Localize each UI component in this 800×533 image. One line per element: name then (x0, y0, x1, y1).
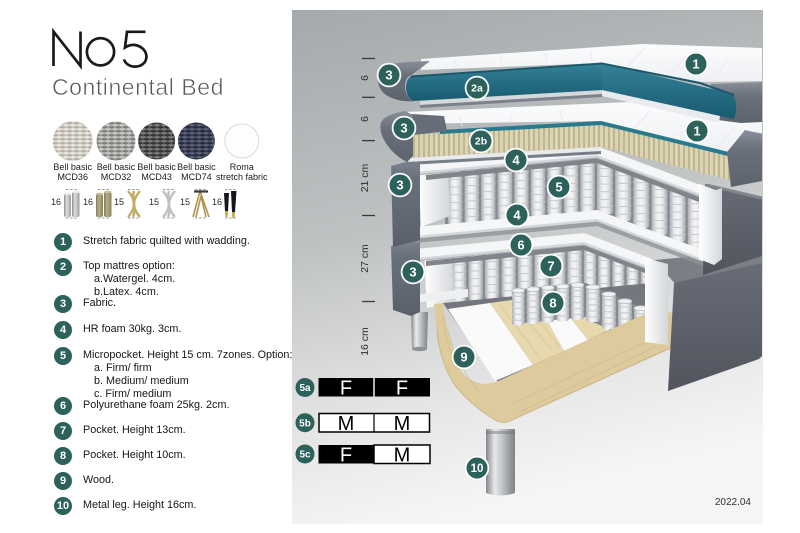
svg-text:stretch fabric: stretch fabric (216, 172, 268, 182)
svg-text:16: 16 (51, 197, 61, 207)
svg-text:5a: 5a (299, 383, 311, 394)
svg-text:3: 3 (385, 68, 392, 83)
svg-text:MCD43: MCD43 (141, 172, 172, 182)
svg-text:16: 16 (212, 197, 222, 207)
svg-text:21 cm: 21 cm (359, 163, 371, 192)
svg-text:4: 4 (513, 208, 521, 223)
svg-text:8: 8 (549, 296, 556, 311)
svg-text:MCD74: MCD74 (181, 172, 212, 182)
svg-text:1: 1 (693, 124, 700, 139)
svg-text:7: 7 (547, 259, 554, 274)
svg-text:Bell basic: Bell basic (97, 162, 136, 172)
svg-text:M: M (338, 413, 355, 435)
svg-text:1: 1 (692, 57, 699, 72)
svg-text:3: 3 (400, 121, 407, 136)
svg-text:F: F (396, 378, 408, 400)
svg-text:15: 15 (149, 197, 159, 207)
svg-text:M: M (394, 413, 411, 435)
svg-text:16: 16 (83, 197, 93, 207)
svg-text:6: 6 (359, 75, 371, 81)
svg-text:Bell basic: Bell basic (137, 162, 176, 172)
svg-text:3: 3 (409, 265, 416, 280)
svg-text:MCD32: MCD32 (101, 172, 132, 182)
svg-text:M: M (394, 445, 411, 467)
svg-text:2a: 2a (471, 83, 483, 95)
svg-text:4: 4 (512, 153, 520, 168)
svg-text:MCD36: MCD36 (57, 172, 88, 182)
svg-text:6: 6 (517, 238, 524, 253)
svg-text:10: 10 (471, 463, 484, 475)
svg-text:Bell basic: Bell basic (177, 162, 216, 172)
svg-text:15: 15 (114, 197, 124, 207)
svg-text:3: 3 (396, 178, 403, 193)
svg-text:2022.04: 2022.04 (715, 497, 752, 508)
svg-text:27 cm: 27 cm (359, 244, 371, 273)
svg-text:15: 15 (180, 197, 190, 207)
svg-text:5b: 5b (299, 418, 311, 429)
svg-text:5c: 5c (299, 450, 311, 461)
svg-text:16 cm: 16 cm (359, 327, 371, 356)
svg-text:F: F (340, 445, 352, 467)
svg-text:6: 6 (359, 116, 371, 122)
svg-text:9: 9 (460, 350, 467, 365)
svg-text:Bell basic: Bell basic (53, 162, 92, 172)
svg-text:5: 5 (555, 180, 562, 195)
svg-text:F: F (340, 378, 352, 400)
svg-text:Roma: Roma (230, 162, 254, 172)
svg-text:2b: 2b (475, 136, 487, 148)
